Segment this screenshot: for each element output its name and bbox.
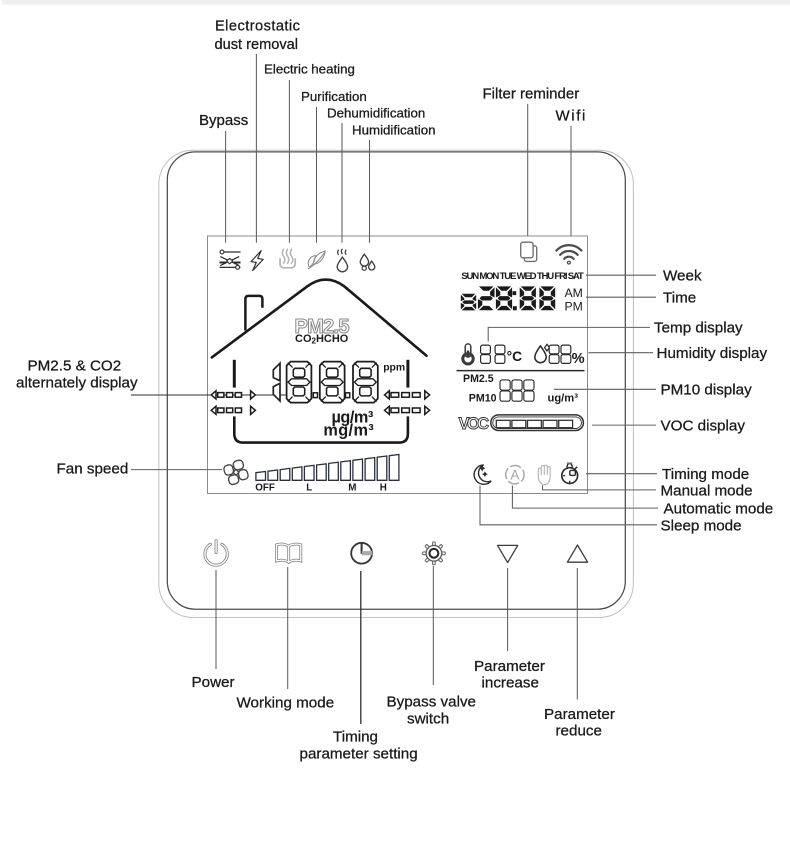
svg-text:Wifi: Wifi [556, 108, 587, 125]
svg-text:ug/m³: ug/m³ [548, 393, 579, 405]
svg-text:PM2.5: PM2.5 [463, 373, 494, 385]
svg-text:parameter setting: parameter setting [300, 746, 418, 763]
svg-text:PM10 display: PM10 display [661, 382, 753, 399]
svg-text:VOC: VOC [459, 415, 490, 433]
svg-text:L: L [306, 483, 312, 494]
svg-text:AM: AM [565, 286, 583, 300]
svg-text:SUN MON TUE WED THU FRI SAT: SUN MON TUE WED THU FRI SAT [461, 271, 584, 282]
svg-text:%: % [572, 351, 585, 367]
svg-text:°C: °C [507, 349, 523, 364]
svg-text:Parameter: Parameter [474, 658, 545, 675]
svg-text:Bypass valve: Bypass valve [387, 694, 476, 711]
svg-text:Bypass: Bypass [199, 112, 248, 129]
svg-text:Electric heating: Electric heating [264, 62, 355, 77]
svg-text:A: A [510, 468, 520, 483]
svg-text:PM10: PM10 [469, 392, 497, 404]
svg-text:Week: Week [663, 267, 702, 284]
svg-text:Sleep mode: Sleep mode [661, 517, 742, 534]
svg-text:Humidification: Humidification [352, 123, 436, 138]
svg-text:H: H [380, 483, 387, 494]
svg-text:increase: increase [482, 674, 539, 691]
svg-text:Power: Power [192, 674, 235, 691]
svg-text:Automatic mode: Automatic mode [664, 500, 774, 517]
svg-text:mg/m³: mg/m³ [323, 422, 374, 440]
svg-text:PM2.5 & CO2: PM2.5 & CO2 [28, 357, 122, 374]
svg-text:ppm: ppm [383, 363, 405, 374]
svg-text:Timing mode: Timing mode [662, 466, 749, 483]
svg-text:dust removal: dust removal [215, 37, 299, 53]
svg-text:Temp display: Temp display [654, 320, 743, 337]
svg-text:Humidity display: Humidity display [657, 345, 768, 362]
svg-text:switch: switch [407, 710, 449, 727]
svg-text:Electrostatic: Electrostatic [215, 19, 300, 35]
svg-text:M: M [348, 483, 356, 494]
svg-text:Manual mode: Manual mode [661, 482, 753, 499]
svg-text:PM: PM [565, 300, 583, 314]
svg-text:CO2HCHO: CO2HCHO [295, 333, 349, 346]
svg-text:Dehumidification: Dehumidification [327, 106, 425, 121]
svg-text:Time: Time [663, 289, 696, 306]
svg-text:Timing: Timing [333, 729, 378, 746]
svg-text:Filter reminder: Filter reminder [483, 86, 580, 103]
svg-text:OFF: OFF [255, 483, 275, 494]
svg-text:VOC display: VOC display [661, 417, 746, 434]
svg-text:Parameter: Parameter [544, 706, 615, 723]
svg-text:Purification: Purification [301, 89, 367, 104]
svg-text:reduce: reduce [556, 722, 602, 739]
svg-text:alternately display: alternately display [16, 375, 138, 392]
svg-text:Fan speed: Fan speed [57, 461, 129, 478]
svg-text:Working mode: Working mode [237, 694, 335, 711]
